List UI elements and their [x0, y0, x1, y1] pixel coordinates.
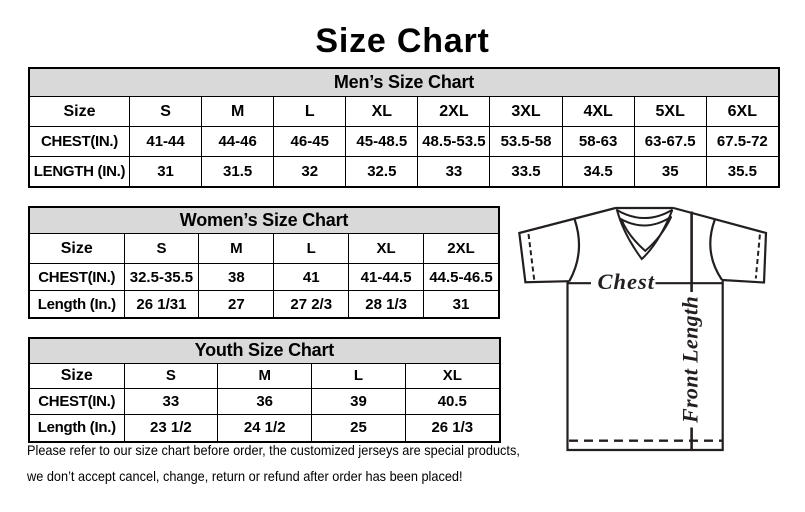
svg-text:Chest: Chest — [598, 269, 656, 294]
svg-text:Front Length: Front Length — [678, 296, 703, 424]
